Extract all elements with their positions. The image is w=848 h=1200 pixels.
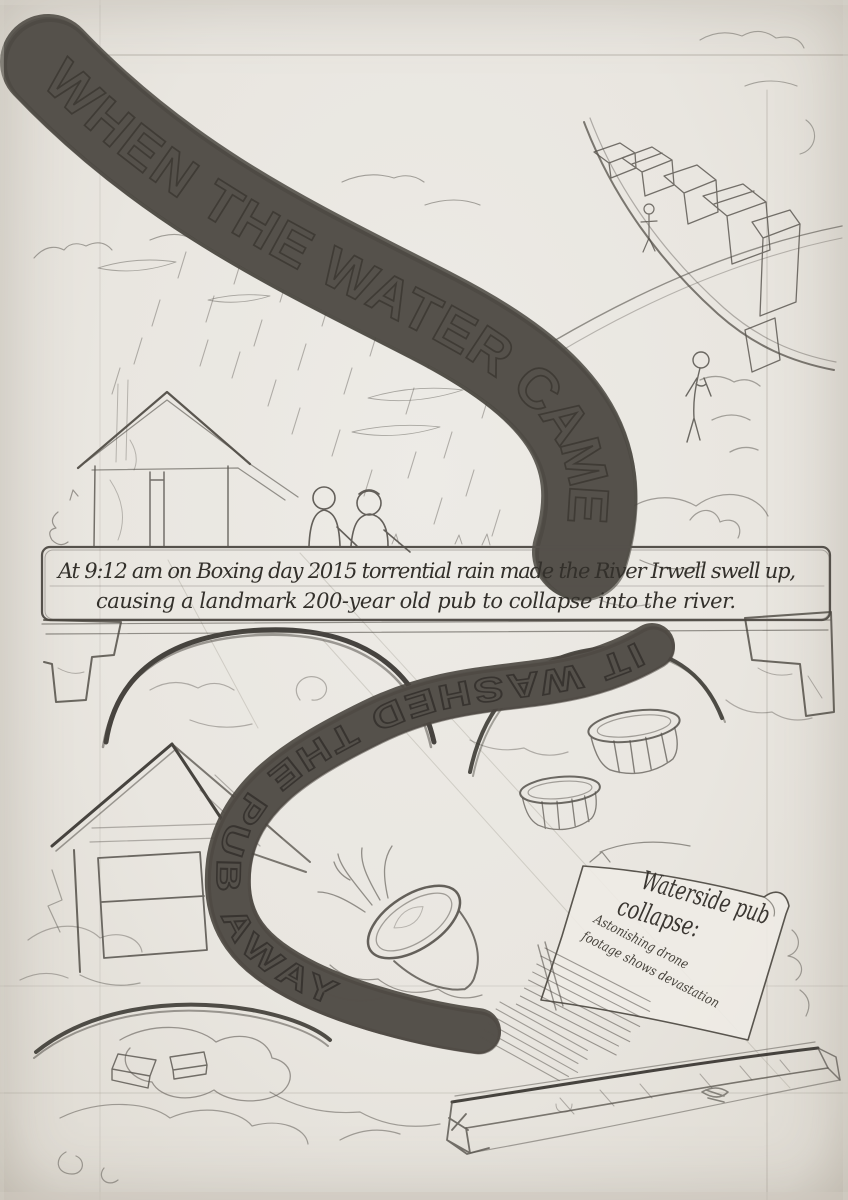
edge-bottom bbox=[0, 1192, 848, 1200]
onlooker-figures bbox=[309, 487, 490, 552]
parapet-lines bbox=[42, 620, 830, 634]
cloud-scribbles-right bbox=[700, 31, 815, 154]
house-left-roof bbox=[78, 392, 250, 468]
corbel-left bbox=[44, 620, 121, 702]
sketch-canvas: WHEN THE WATER CAME At 9:12 am on Boxing… bbox=[0, 0, 848, 1200]
splash-grass bbox=[318, 846, 392, 912]
floating-plank bbox=[447, 1042, 840, 1154]
bush bbox=[50, 490, 78, 545]
caption-line-2: causing a landmark 200-year old pub to c… bbox=[96, 589, 736, 613]
house-5 bbox=[745, 210, 800, 372]
edge-left bbox=[0, 0, 4, 1200]
house-left-walls bbox=[94, 466, 228, 546]
barrel-1 bbox=[586, 705, 686, 779]
plank-right-end bbox=[818, 1048, 840, 1080]
plank-top-echo bbox=[455, 1042, 815, 1096]
sky-clouds bbox=[34, 31, 815, 435]
figure-1-body bbox=[309, 510, 357, 546]
house-left-shading bbox=[110, 380, 136, 540]
stick-figure-large bbox=[686, 352, 711, 442]
pub-wall bbox=[74, 850, 80, 972]
figure-1-head bbox=[313, 487, 335, 509]
plank-knot bbox=[702, 1088, 728, 1102]
grass-tufts bbox=[392, 534, 490, 545]
edge-right bbox=[843, 0, 848, 1200]
pub-opening bbox=[98, 852, 207, 958]
house-4 bbox=[703, 184, 770, 264]
caption-band: At 9:12 am on Boxing day 2015 torrential… bbox=[42, 547, 830, 620]
caption-line-1: At 9:12 am on Boxing day 2015 torrential… bbox=[56, 559, 796, 583]
brick-2 bbox=[170, 1052, 207, 1079]
figure-2-head bbox=[357, 491, 381, 515]
pool-squiggles bbox=[58, 1092, 440, 1183]
corbel-right bbox=[745, 612, 834, 716]
newspaper-side-swirl bbox=[788, 930, 809, 1016]
pub-base-scribbles bbox=[48, 870, 140, 985]
debris-bricks bbox=[112, 1052, 207, 1088]
pool-blob-1 bbox=[120, 1027, 290, 1100]
house-left bbox=[50, 380, 298, 546]
edge-top bbox=[0, 0, 848, 5]
plank-top-edge bbox=[452, 1048, 818, 1102]
sketch-sheet: WHEN THE WATER CAME At 9:12 am on Boxing… bbox=[0, 0, 848, 1200]
barrel-2 bbox=[519, 774, 603, 833]
brick-1 bbox=[112, 1054, 156, 1088]
title-ribbon: WHEN THE WATER CAME bbox=[33, 47, 622, 555]
rubble-scribbles bbox=[700, 376, 760, 452]
